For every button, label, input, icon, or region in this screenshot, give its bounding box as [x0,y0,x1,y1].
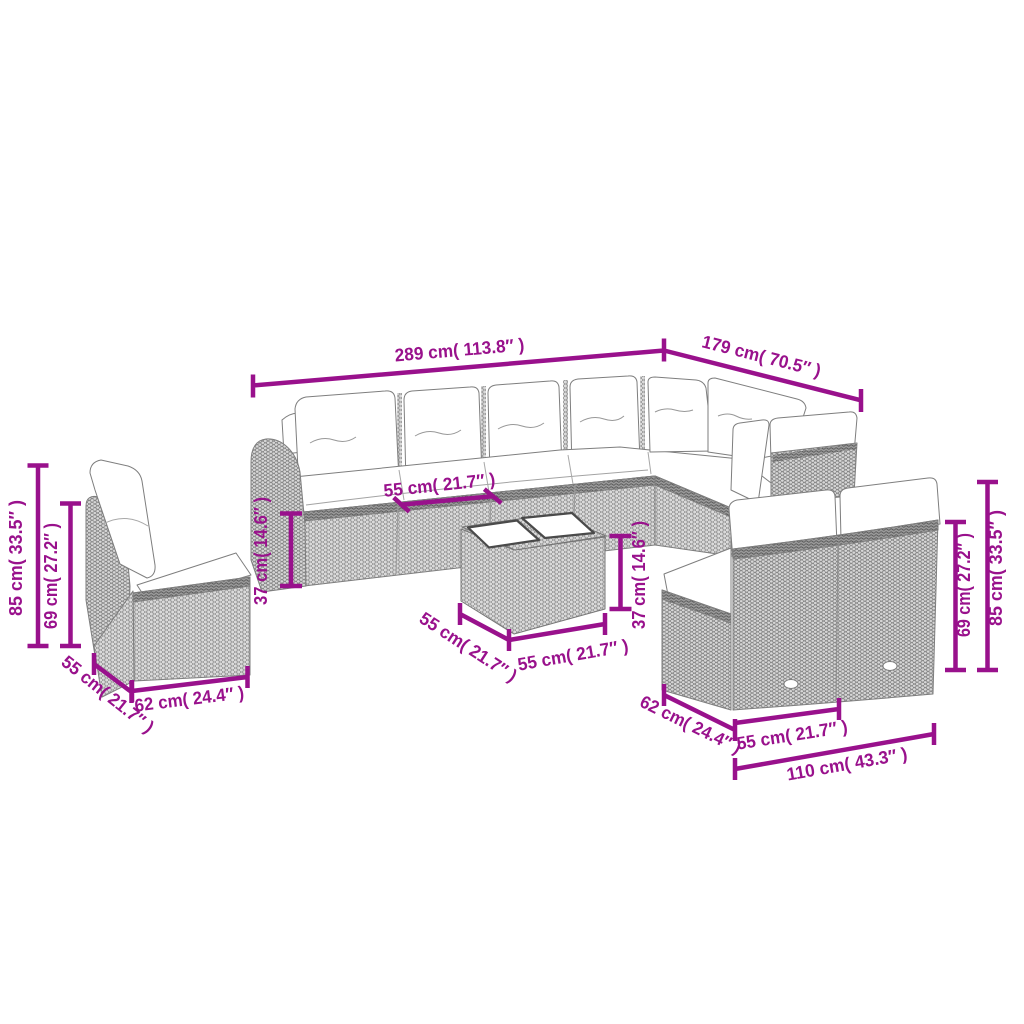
svg-text:69 cm( 27.2″ ): 69 cm( 27.2″ ) [954,533,974,637]
svg-text:85 cm( 33.5″ ): 85 cm( 33.5″ ) [6,500,26,616]
svg-text:69 cm( 27.2″ ): 69 cm( 27.2″ ) [41,523,61,629]
svg-text:37 cm( 14.6″ ): 37 cm( 14.6″ ) [251,497,271,605]
svg-text:37 cm( 14.6″ ): 37 cm( 14.6″ ) [629,521,649,629]
svg-text:85 cm( 33.5″ ): 85 cm( 33.5″ ) [986,510,1006,626]
